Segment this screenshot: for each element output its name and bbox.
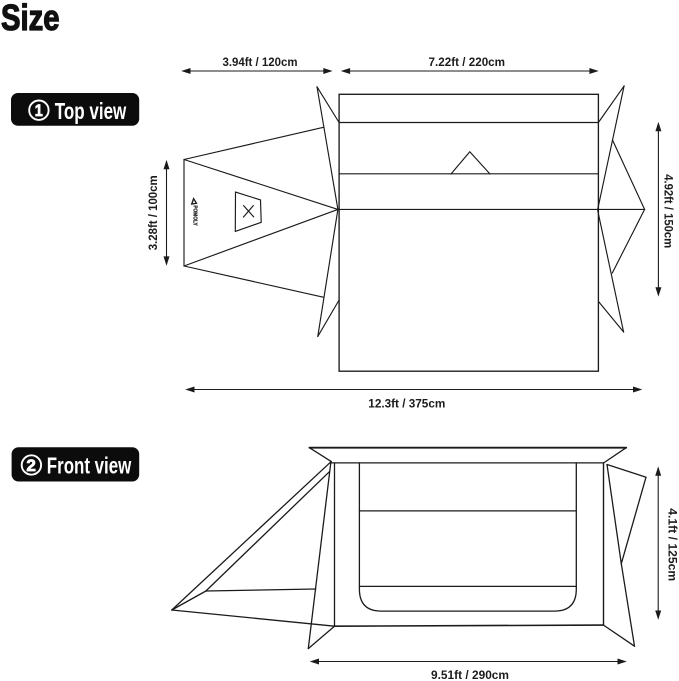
svg-text:3.94ft / 120cm: 3.94ft / 120cm (223, 55, 298, 69)
svg-text:12.3ft / 375cm: 12.3ft / 375cm (368, 396, 445, 410)
svg-text:POMOLY: POMOLY (191, 205, 197, 226)
svg-text:4.92ft / 150cm: 4.92ft / 150cm (662, 174, 676, 248)
svg-text:4.1ft / 125cm: 4.1ft / 125cm (665, 508, 679, 581)
svg-text:Front view: Front view (47, 452, 132, 478)
svg-text:9.51ft / 290cm: 9.51ft / 290cm (431, 668, 509, 681)
svg-text:Size: Size (1, 0, 60, 38)
svg-text:3.28ft / 100cm: 3.28ft / 100cm (146, 175, 160, 250)
svg-text:7.22ft / 220cm: 7.22ft / 220cm (429, 55, 506, 69)
svg-text:Top view: Top view (55, 98, 127, 124)
svg-text:1: 1 (35, 101, 43, 120)
svg-text:2: 2 (26, 456, 36, 475)
